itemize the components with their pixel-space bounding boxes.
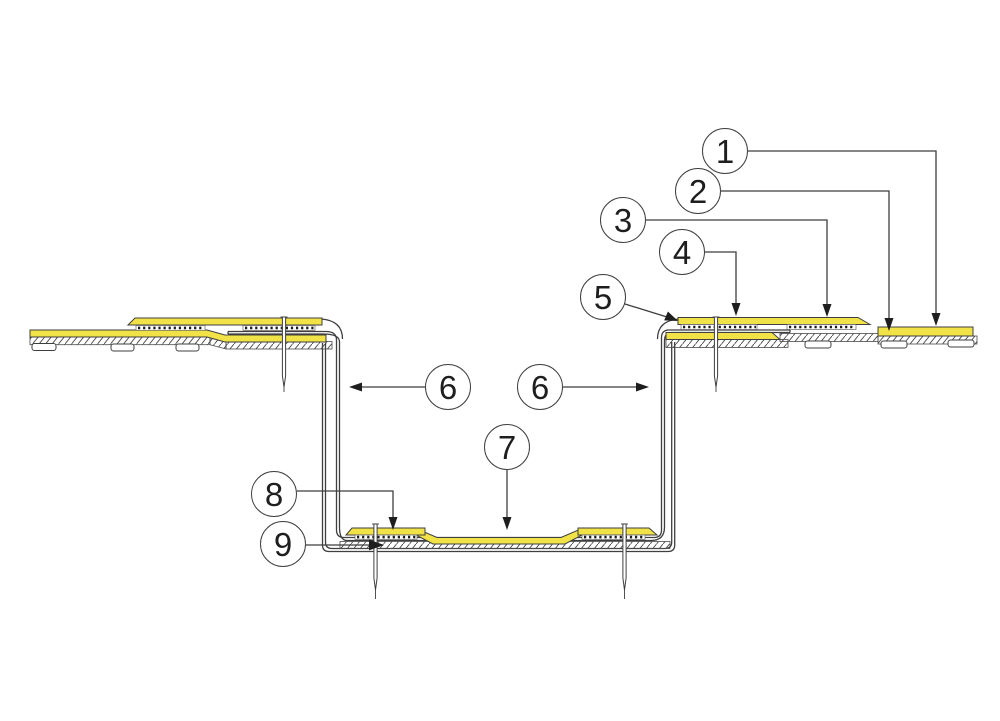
callout-6-right-label: 6 — [531, 371, 549, 404]
callout-3: 3 — [600, 197, 646, 243]
callout-7: 7 — [484, 424, 530, 470]
callout-2-label: 2 — [689, 175, 707, 208]
callout-5-label: 5 — [594, 281, 612, 314]
callout-6-right: 6 — [517, 364, 563, 410]
detail-linework — [0, 0, 1000, 721]
callout-8-label: 8 — [265, 478, 283, 511]
technical-detail-drawing: 1 2 3 4 5 6 6 7 8 9 — [0, 0, 1000, 721]
callout-3-label: 3 — [614, 204, 632, 237]
callout-6-left: 6 — [425, 364, 471, 410]
callout-8: 8 — [251, 471, 297, 517]
callout-5: 5 — [580, 274, 626, 320]
callout-9: 9 — [260, 521, 306, 567]
callout-2: 2 — [675, 168, 721, 214]
callout-9-label: 9 — [274, 528, 292, 561]
callout-1: 1 — [702, 128, 748, 174]
callout-7-label: 7 — [498, 431, 516, 464]
callout-4: 4 — [659, 229, 705, 275]
callout-6-left-label: 6 — [439, 371, 457, 404]
callout-1-label: 1 — [716, 135, 734, 168]
callout-4-label: 4 — [673, 236, 691, 269]
